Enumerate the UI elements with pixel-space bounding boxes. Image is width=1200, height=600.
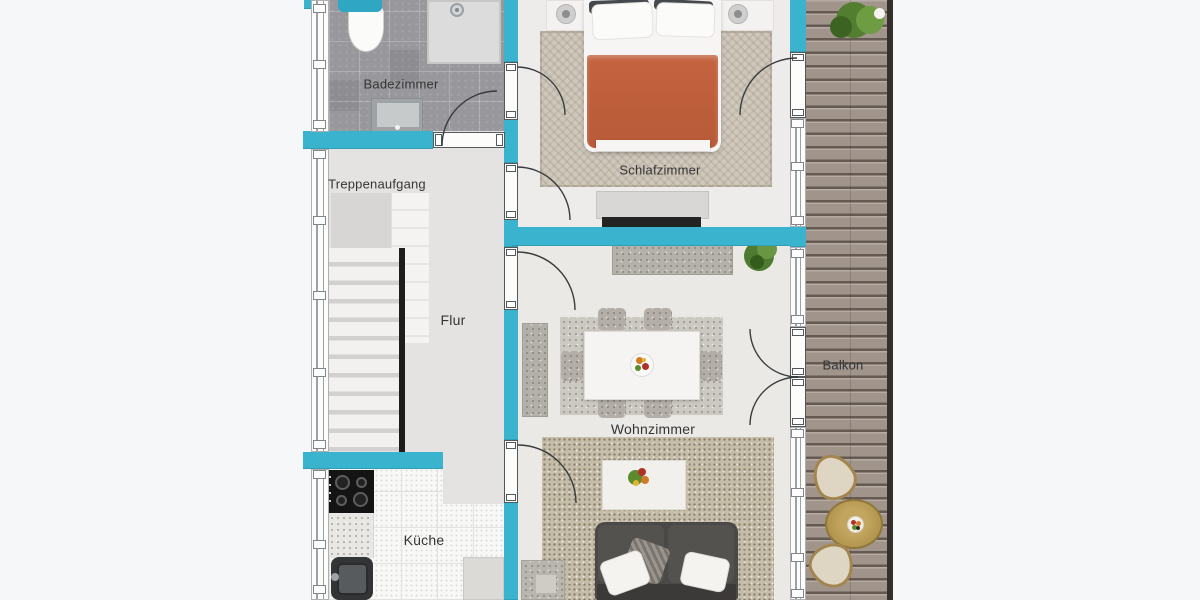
room-label-badezimmer: Badezimmer [364,77,439,92]
door-arc-balcony-living-top [750,329,798,377]
room-label-balkon: Balkon [823,358,864,373]
door-arc-livingroom-kitchen [518,445,576,503]
door-arc-bedroom-lower [517,167,570,220]
room-label-flur: Flur [441,312,466,328]
door-arc-balcony-bedroom [740,58,797,115]
room-label-wohnzimmer: Wohnzimmer [611,421,695,437]
door-arc-balcony-living-bottom [750,377,798,425]
door-arc-livingroom-hall [517,252,575,310]
door-arc-bedroom-upper [517,67,565,115]
door-arc-bathroom [442,91,497,146]
room-label-kueche: Küche [404,532,445,548]
door-swing-arcs [0,0,1200,600]
room-label-schlafzimmer: Schlafzimmer [619,163,700,178]
room-label-treppenaufgang: Treppenaufgang [328,177,426,192]
floorplan: Badezimmer Schlafzimmer Treppenaufgang F… [0,0,1200,600]
